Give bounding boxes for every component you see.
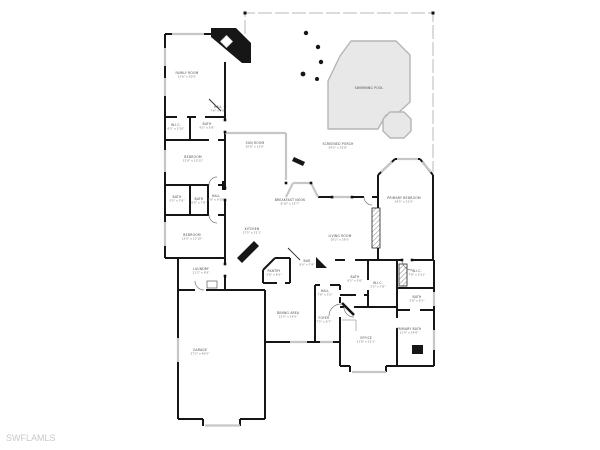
kitchen-island: [237, 241, 259, 263]
room-label-sun-room: SUN ROOM20'8" x 13'0": [246, 141, 265, 149]
room-label-hall-3: HALL7'8" x 5'5": [317, 289, 332, 297]
floor-plan-svg: FAMILY ROOM13'8" x 20'6"HALL7'6" x 7'0"W…: [0, 0, 600, 450]
room-label-dining-area: DINING AREA12'5" x 14'6": [277, 311, 300, 319]
post-dot-icon: [316, 45, 320, 49]
room-label-laundry: LAUNDRY11'2" x 6'9": [193, 267, 210, 275]
porch-door: [292, 157, 305, 166]
room-label-living-room: LIVING ROOM20'2" x 19'5": [328, 234, 351, 242]
room-label-bath-5: BATH5'8" x 8'3": [409, 295, 424, 303]
room-label-primary-bedroom: PRIMARY BEDROOM14'5" x 21'0": [387, 196, 421, 204]
room-label-screened-porch: SCREENED PORCH54'5" x 52'8": [322, 142, 354, 150]
floor-plan-image: FAMILY ROOM13'8" x 20'6"HALL7'6" x 7'0"W…: [0, 0, 600, 450]
room-label-bath-3: BATH6'0" x 7'8": [191, 197, 206, 205]
post-dot-icon: [315, 77, 319, 81]
tub-icon: [412, 345, 423, 354]
room-label-bedroom-2: BEDROOM13'5" x 12'10": [182, 233, 203, 241]
room-label-bedroom-1: BEDROOM12'8" x 13'11": [183, 155, 204, 163]
post-dot-icon: [319, 60, 323, 64]
room-label-swimming-pool: SWIMMING POOL: [355, 86, 384, 90]
post-dot-icon: [304, 31, 308, 35]
porch-posts: [301, 31, 324, 81]
bar-corner: [316, 257, 327, 268]
room-label-pantry: PANTRY5'8" x 6'5": [266, 269, 281, 277]
watermark: SWFLAMLS: [6, 433, 56, 443]
room-label-bar: BAR8'0" x 7'4": [299, 259, 314, 267]
primary-closet-shelves: [372, 208, 380, 248]
wic-shelves: [399, 264, 407, 286]
room-label-kitchen: KITCHEN17'5" x 21'1": [243, 227, 262, 235]
closet-shelving: [372, 208, 407, 286]
room-label-bath-1: BATH9'5" x 5'8": [199, 122, 214, 130]
room-label-office: OFFICE11'8" x 13'1": [357, 336, 376, 344]
room-label-garage: GARAGE27'2" x 40'5": [191, 348, 210, 356]
enclosure-post-icon: [432, 12, 435, 15]
enclosure-post-icon: [244, 12, 247, 15]
laundry-utility: [207, 281, 217, 288]
room-label-family-room: FAMILY ROOM13'8" x 20'6": [175, 71, 198, 79]
room-label-primary-bath: PRIMARY BATH11'4" x 14'8": [397, 327, 422, 335]
entry-stoop: [342, 320, 356, 331]
room-label-bath-2: BATH5'5" x 7'8": [169, 195, 184, 203]
room-label-wic-2: W.I.C.5'5" x 7'8": [370, 281, 385, 289]
post-dot-icon: [301, 72, 306, 77]
front-door: [342, 303, 354, 315]
room-label-breakfast-nook: BREAKFAST NOOK8'10" x 15'7": [275, 198, 306, 206]
room-label-bath-4: BATH8'5" x 5'6": [347, 275, 362, 283]
room-label-wic-1: W.I.C.6'5" x 5'10": [168, 123, 185, 131]
room-label-hall-1: HALL7'6" x 7'0": [210, 105, 225, 113]
room-label-hall-2: HALL3'8" x 9'10": [208, 194, 225, 202]
room-label-foyer: FOYER7'5" x 6'7": [316, 316, 331, 324]
spa-shape: [383, 112, 411, 138]
